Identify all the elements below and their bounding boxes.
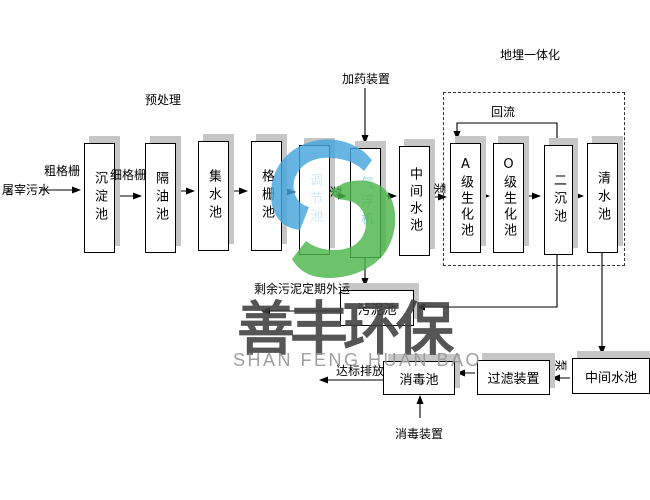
fine-screen-label: 细格栅 [110, 166, 146, 183]
tank-oil-separation: 隔油池 [145, 143, 176, 253]
tank-grid: 格栅池 [251, 141, 282, 251]
pretreatment-label: 预处理 [145, 91, 181, 108]
tank-regulating: 调节池 [299, 145, 330, 255]
tank-sludge: 污泥池 [340, 290, 414, 326]
disinfection-device-label: 消毒装置 [395, 425, 443, 442]
tank-intermediate-1: 中间水池 [399, 146, 430, 256]
tank-sedimentation: 沉淀池 [84, 143, 115, 253]
tank-clear-water-label: 清水池 [596, 171, 609, 225]
tank-o-biochemical-label: O级生化池 [502, 157, 515, 239]
tank-a-biochemical-label: A级生化池 [459, 157, 472, 239]
tank-a-biochemical: A级生化池 [450, 143, 481, 253]
tank-air-flotation-label: 气浮机 [359, 176, 372, 230]
tank-o-biochemical: O级生化池 [493, 143, 524, 253]
tank-air-flotation: 气浮机 [350, 148, 381, 258]
device-filter: 过滤装置 [477, 360, 550, 395]
tank-disinfection-label: 消毒池 [399, 369, 438, 388]
tank-collection: 集水池 [198, 141, 229, 251]
reflux-label: 回流 [491, 103, 515, 120]
excess-sludge-out-label: 剩余污泥定期外运 [254, 280, 350, 297]
tank-secondary-sedimentation: 二沉池 [544, 145, 573, 255]
dosing-device-label: 加药装置 [342, 70, 390, 87]
tank-grid-label: 格栅池 [260, 169, 273, 223]
tank-sludge-label: 污泥池 [357, 299, 396, 318]
tank-disinfection: 消毒池 [383, 361, 455, 395]
device-filter-label: 过滤装置 [487, 368, 539, 387]
tank-clear-water: 清水池 [587, 143, 618, 253]
pump-label-2: 泵 [432, 182, 449, 194]
tank-collection-label: 集水池 [207, 169, 220, 223]
pump-label-1: 泵 [328, 185, 345, 197]
tank-secondary-sedimentation-label: 二沉池 [552, 173, 565, 227]
influent-label: 屠宰污水 [2, 181, 50, 198]
tank-intermediate-1-label: 中间水池 [408, 167, 421, 235]
discharge-label: 达标排放 [336, 362, 384, 379]
buried-integration-label: 地埋一体化 [500, 46, 560, 63]
tank-intermediate-2-label: 中间水池 [585, 367, 637, 386]
flow-diagram-canvas: 沉淀池 隔油池 集水池 格栅池 调节池 气浮机 中间水池 A级生化池 O级生化池… [0, 0, 650, 500]
tank-intermediate-2: 中间水池 [572, 358, 650, 394]
pump-label-3: 泵 [553, 359, 570, 371]
tank-sedimentation-label: 沉淀池 [93, 171, 106, 225]
tank-oil-separation-label: 隔油池 [154, 171, 167, 225]
coarse-screen-label: 粗格栅 [44, 162, 80, 179]
tank-regulating-label: 调节池 [308, 173, 321, 227]
